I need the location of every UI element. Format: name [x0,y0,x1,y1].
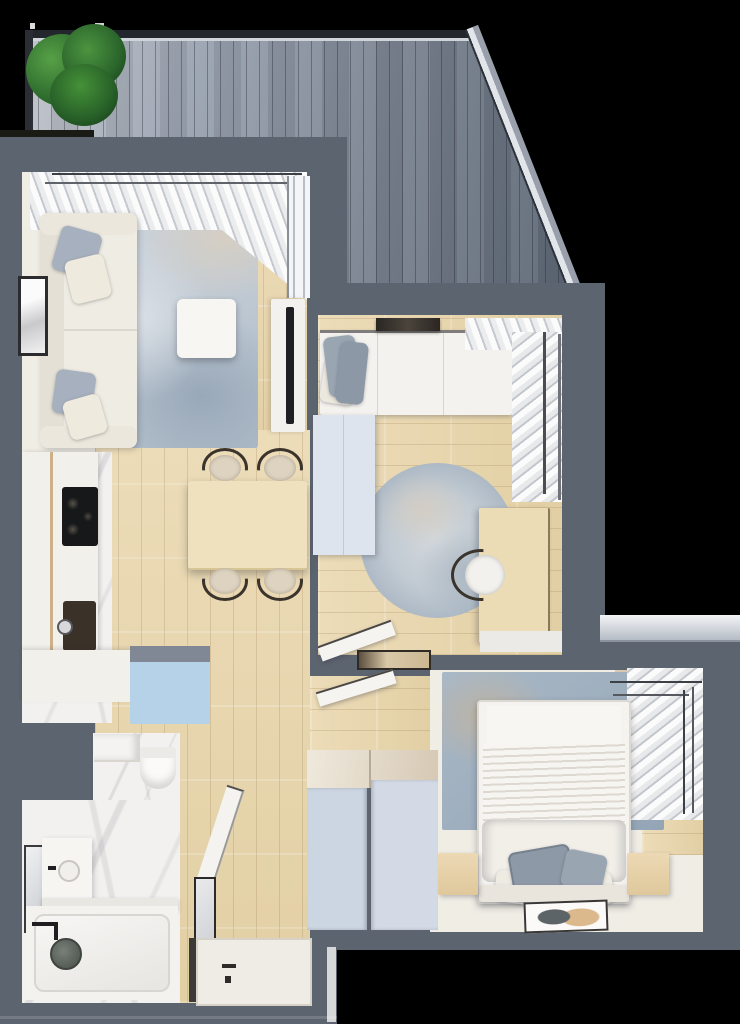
terrace-door [287,176,310,298]
wall-end-cap [327,947,336,1022]
wardrobe-seam [343,415,344,555]
dining-chair [257,561,303,601]
kitchen-blue-cabinet [130,646,210,724]
wall-shelf [376,318,440,331]
kitchen-counter-bottom [22,650,134,702]
blind-rail [610,681,702,683]
entrance-door-frame [189,938,196,1002]
toilet [140,747,176,789]
mattress-seam [377,333,378,415]
hall-wardrobe-right [371,780,438,930]
kids-wardrobe [313,415,375,555]
dining-chair [202,561,248,601]
doormat [357,650,431,670]
kitchen-sink [63,601,96,651]
potted-plant [22,24,128,130]
toilet-tank [140,747,176,758]
dining-chair [202,448,248,488]
kitchen-counter-wood-trim [50,452,53,662]
bed-sheet-top [487,706,621,744]
window-frame-line [543,332,546,494]
wall-tv [286,307,294,424]
bed-ruffled-duvet [483,744,625,822]
sink-faucet [57,619,73,635]
blind-rail [683,690,685,814]
door-handle [222,964,236,968]
cooktop [62,487,98,546]
tv-console [271,299,305,432]
sofa [40,213,137,448]
vanity-faucet [48,866,56,870]
shower-head [50,938,82,970]
dining-chair [257,448,303,488]
mattress-seam [443,333,444,415]
entrance-door [196,938,312,1006]
master-bed [477,700,631,904]
chair-seat [264,568,296,594]
kids-room-ledge [480,631,562,652]
kids-window-blinds-right [512,332,562,502]
wall-art [18,276,48,356]
chair-seat [209,455,241,481]
window-frame-line [558,334,561,500]
wall-bottom-highlight [0,1016,337,1019]
curtain-rail [45,182,303,184]
tub-faucet [54,922,58,940]
chair-seat [465,555,505,595]
cabinet-top-face [130,646,210,662]
vanity [42,838,92,903]
floor-mat-art [523,900,608,934]
nightstand-right [627,853,669,895]
sofa-pillow-white [63,253,112,305]
nightstand-left [438,853,478,895]
door-handle [225,976,231,983]
vanity-sink [58,860,80,882]
coffee-table [177,299,236,358]
hall-wardrobe-left [307,788,367,930]
window-ledge [600,615,740,642]
plant-foliage [50,64,118,126]
blind-rail [692,687,694,813]
sofa-seam [64,329,137,331]
chair-seat [209,568,241,594]
washer-cabinet [94,734,140,762]
kids-pillow-gray [335,341,369,406]
dining-table [188,481,307,570]
blind-rail [613,694,689,696]
chair-seat [264,455,296,481]
bathtub [26,906,178,1000]
desk-chair [451,549,511,601]
curtain-rail [52,173,302,175]
floor-plan [0,0,740,1024]
exterior-notch [337,950,740,1024]
